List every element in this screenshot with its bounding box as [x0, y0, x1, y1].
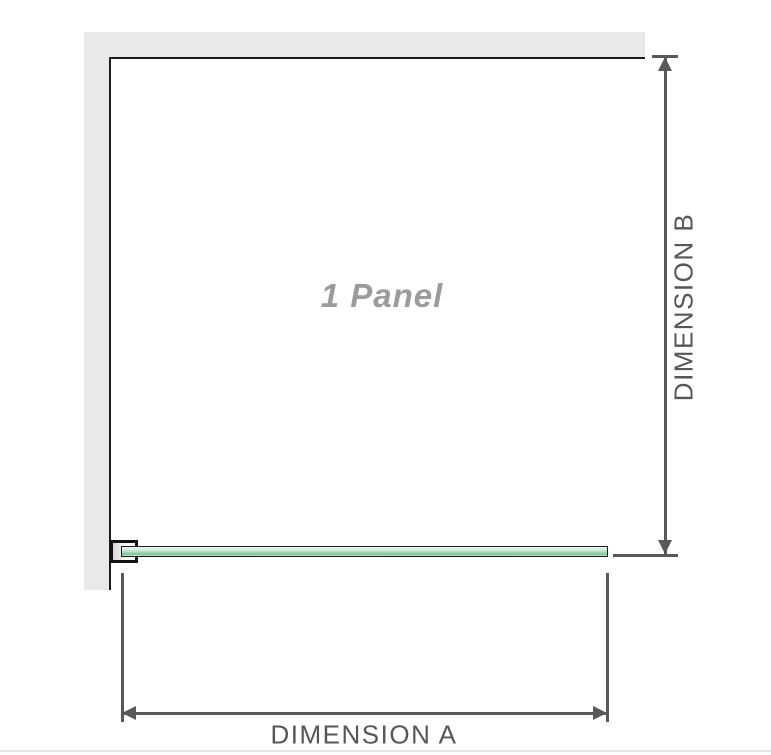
- arrow-right-icon: [593, 706, 607, 720]
- wall-top-band: [84, 32, 645, 58]
- panel-left-edge: [109, 57, 111, 590]
- dimension-a-left-extension: [121, 573, 124, 722]
- dimension-b-label: DIMENSION B: [669, 213, 700, 401]
- dimension-b-line: [664, 58, 667, 554]
- dimension-a-right-extension: [606, 573, 609, 722]
- wall-left-band: [84, 32, 110, 590]
- glass-panel-bar: [121, 546, 608, 557]
- panel-top-edge: [109, 57, 645, 59]
- arrow-up-icon: [658, 57, 672, 71]
- arrow-down-icon: [658, 540, 672, 554]
- panel-dimension-diagram: 1 Panel DIMENSION B DIMENSION A: [0, 0, 771, 755]
- dimension-b-bottom-tick: [613, 554, 678, 557]
- dimension-a-line: [122, 712, 607, 715]
- arrow-left-icon: [122, 706, 136, 720]
- dimension-a-label: DIMENSION A: [271, 720, 458, 751]
- panel-count-label: 1 Panel: [321, 277, 444, 315]
- page-bottom-divider: [0, 750, 771, 752]
